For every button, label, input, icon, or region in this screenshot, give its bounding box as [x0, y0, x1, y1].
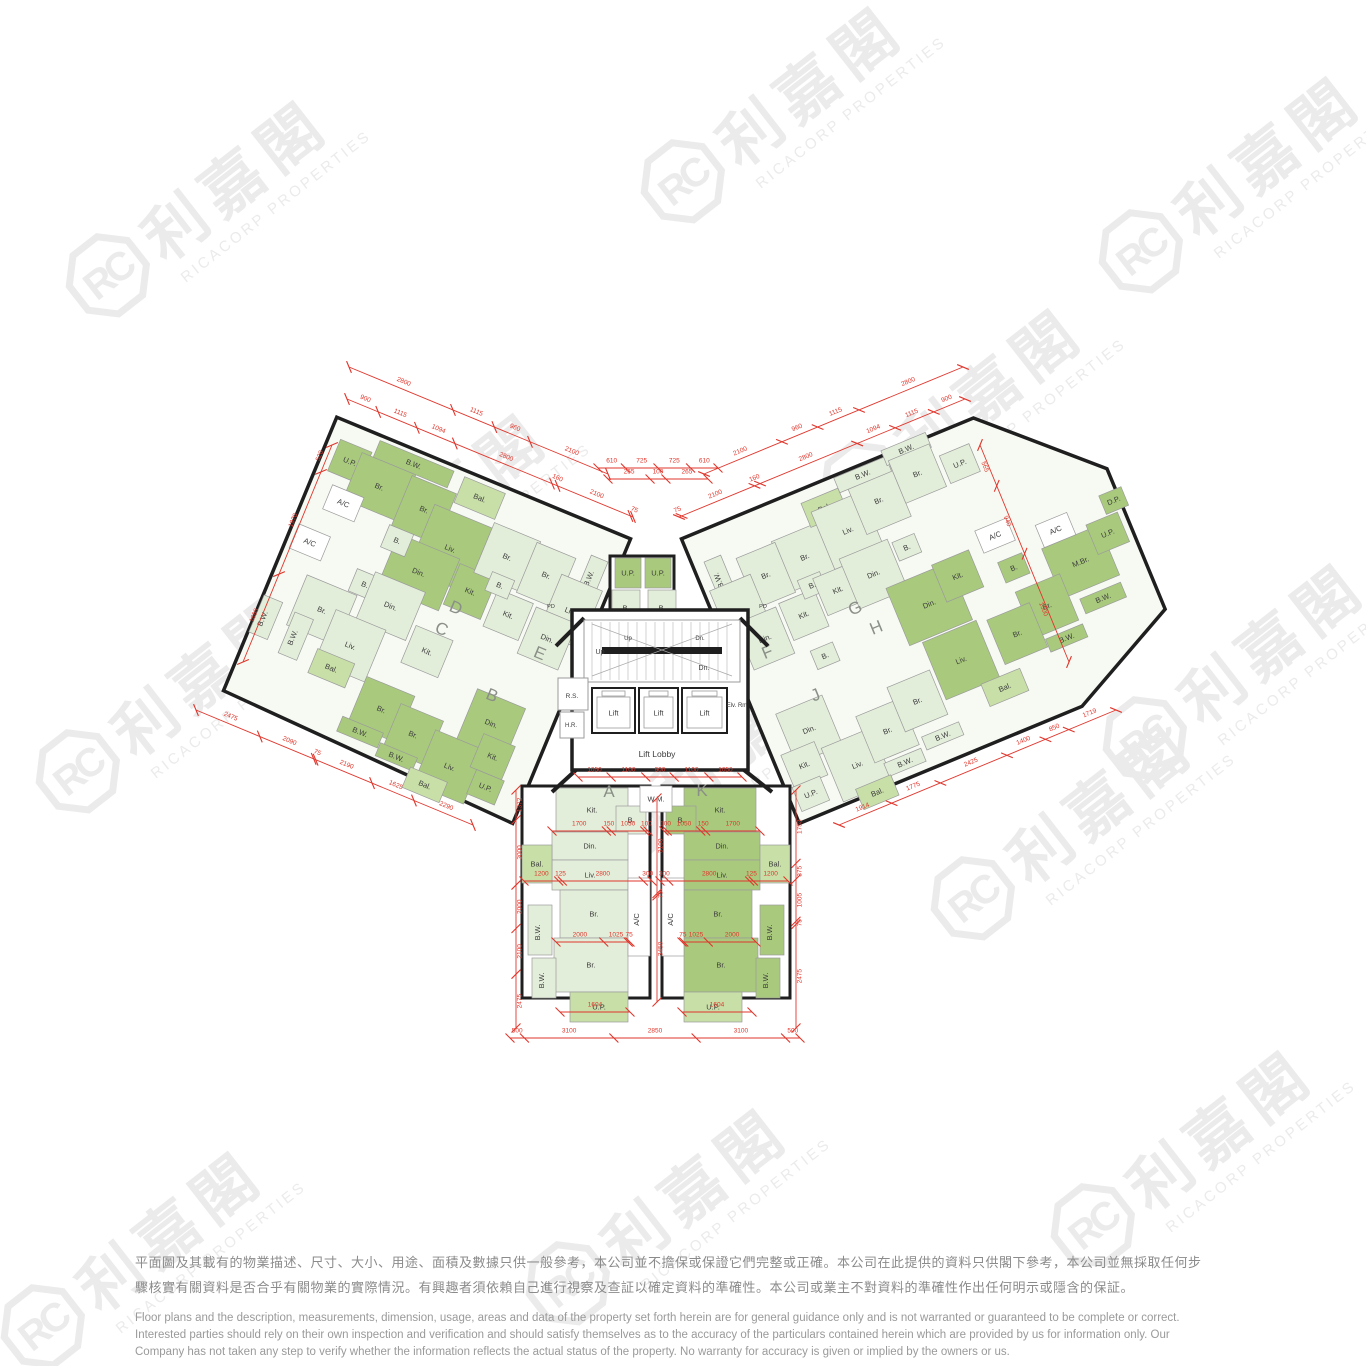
- text-label: 125: [555, 871, 566, 878]
- text-label: 1025: [609, 932, 624, 939]
- text-label: Up: [624, 636, 632, 642]
- text-label: B.W.: [765, 925, 774, 941]
- text-label: 1094: [431, 423, 447, 435]
- text-label: 265: [624, 469, 635, 476]
- text-label: 3000: [517, 845, 524, 860]
- text-label: 75: [658, 891, 665, 899]
- disclaimer-en-line: Company has not taken any step to verify…: [135, 1344, 1240, 1361]
- text-label: Dn.: [695, 636, 705, 642]
- text-label: 1700: [572, 821, 587, 828]
- watermark: RC利嘉閣RICACORP PROPERTIES: [1089, 42, 1366, 320]
- dimension-chain: 17533751005752475: [792, 786, 804, 1033]
- text-label: 75: [673, 505, 683, 514]
- dimension-chain: 265100265: [604, 469, 713, 484]
- text-label: Br.: [586, 961, 595, 970]
- text-label: Kit.: [587, 806, 598, 815]
- text-label: 1094: [865, 423, 881, 435]
- text-label: 900: [359, 394, 372, 405]
- text-label: 2000: [573, 932, 588, 939]
- text-label: B.W.: [537, 973, 546, 989]
- text-label: 300: [642, 871, 653, 878]
- text-label: 3100: [562, 1028, 577, 1035]
- text-label: 1005: [797, 893, 804, 908]
- text-label: 1115: [469, 406, 485, 418]
- text-label: 1604: [588, 1002, 603, 1009]
- text-label: 1115: [393, 408, 409, 420]
- text-label: 1625: [388, 779, 404, 791]
- text-label: 2100: [589, 488, 605, 500]
- text-label: Din.: [715, 842, 728, 851]
- text-label: Kit.: [715, 806, 726, 815]
- text-label: 2800: [396, 376, 412, 388]
- stair-landing: [602, 647, 722, 654]
- text-label: U.P.: [651, 569, 665, 578]
- text-label: PD: [547, 604, 555, 610]
- floor-plan-page: RC利嘉閣RICACORP PROPERTIESRC利嘉閣RICACORP PR…: [0, 0, 1366, 1366]
- text-label: 2475: [797, 969, 804, 984]
- text-label: Liv.: [584, 871, 595, 880]
- text-label: 1719: [1082, 707, 1098, 719]
- text-label: B.W.: [533, 925, 542, 941]
- text-label: 100: [660, 821, 671, 828]
- text-label: 2800: [798, 451, 814, 463]
- left-wing: U.P.B.W.Br.Br.Bal.Liv.Din.Kit.B.A/CA/CB.…: [215, 417, 630, 832]
- text-label: U.P.: [621, 569, 635, 578]
- text-label: 125: [746, 871, 757, 878]
- text-label: 2800: [900, 376, 916, 388]
- disclaimer-zh-line: 平面圖及其載有的物業描述、尺寸、大小、用途、面積及數據只供一般參考，本公司並不擔…: [135, 1250, 1240, 1275]
- disclaimer-block: 平面圖及其載有的物業描述、尺寸、大小、用途、面積及數據只供一般參考，本公司並不擔…: [135, 1250, 1240, 1361]
- text-label: 75: [679, 932, 687, 939]
- text-label: 1050: [677, 821, 692, 828]
- text-label: 2100: [707, 488, 723, 500]
- text-label: 300: [659, 871, 670, 878]
- text-label: 1914: [855, 801, 871, 813]
- text-label: 2100: [732, 445, 748, 457]
- text-label: 1400: [1015, 735, 1031, 747]
- core: LiftLiftLiftLift LobbyR.S.H.R.Elv. RmUpD…: [547, 604, 772, 792]
- text-label: Din.: [583, 842, 596, 851]
- text-label: Lift Lobby: [639, 749, 677, 759]
- text-label: 2425: [963, 756, 979, 768]
- text-label: 100: [653, 469, 664, 476]
- text-label: 150: [698, 821, 709, 828]
- floor-plan-canvas: RC利嘉閣RICACORP PROPERTIESRC利嘉閣RICACORP PR…: [0, 0, 1366, 1366]
- text-label: Up: [596, 649, 605, 656]
- text-label: 725: [669, 458, 680, 465]
- text-label: 2000: [517, 899, 524, 914]
- text-label: 1700: [726, 821, 741, 828]
- disclaimer-en-line: Interested parties should rely on their …: [135, 1327, 1240, 1344]
- watermark: RC利嘉閣RICACORP PROPERTIES: [631, 0, 950, 250]
- text-label: Br.: [713, 910, 722, 919]
- text-label: 1200: [534, 871, 549, 878]
- text-label: Br.: [589, 910, 598, 919]
- text-label: 2800: [596, 871, 611, 878]
- text-label: B.W.: [761, 973, 770, 989]
- text-label: 2090: [281, 735, 297, 747]
- text-label: Dn.: [699, 665, 710, 672]
- text-label: 610: [699, 458, 710, 465]
- text-label: Lift: [608, 709, 619, 718]
- text-label: A/C: [666, 913, 675, 926]
- text-label: 960: [791, 423, 804, 434]
- text-label: Lift: [653, 709, 664, 718]
- text-label: 2290: [438, 800, 454, 812]
- text-label: 2800: [702, 871, 717, 878]
- text-label: 2850: [648, 1028, 663, 1035]
- text-label: 75: [797, 919, 804, 927]
- text-label: 1100: [621, 767, 635, 774]
- text-label: 900: [655, 767, 666, 774]
- watermark: RC利嘉閣RICACORP PROPERTIES: [56, 66, 375, 344]
- text-label: 1050: [718, 767, 733, 774]
- text-label: 1372: [517, 797, 524, 812]
- text-label: 3100: [734, 1028, 749, 1035]
- text-label: Liv.: [716, 871, 727, 880]
- text-label: 2100: [517, 944, 524, 959]
- text-label: 3450: [658, 941, 665, 956]
- text-label: H.R.: [565, 723, 577, 729]
- text-label: 725: [636, 458, 647, 465]
- text-label: K: [696, 781, 708, 800]
- text-label: 2000: [725, 932, 740, 939]
- text-label: 150: [603, 821, 614, 828]
- text-label: Bal.: [769, 860, 782, 869]
- dimension-chain: 500310028503100500: [506, 1028, 805, 1043]
- text-label: 100: [641, 821, 652, 828]
- text-label: 850: [1048, 723, 1061, 734]
- text-label: 1100: [685, 767, 699, 774]
- text-label: 1050: [587, 767, 602, 774]
- text-label: Lift: [699, 709, 710, 718]
- text-label: Br.: [716, 961, 725, 970]
- text-label: 160: [748, 473, 761, 484]
- text-label: 265: [682, 469, 693, 476]
- text-label: R.S.: [566, 693, 579, 700]
- text-label: Elv. Rm: [727, 703, 748, 709]
- text-label: 1753: [797, 819, 804, 834]
- text-label: 1025: [689, 932, 704, 939]
- text-label: Bal.: [531, 860, 544, 869]
- disclaimer-zh-line: 驟核實有關資料是否合乎有關物業的實際情況。有興趣者須依賴自己進行視察及查証以確定…: [135, 1275, 1240, 1300]
- text-label: 1775: [905, 780, 921, 792]
- text-label: 2190: [339, 759, 355, 771]
- text-label: 2475: [517, 993, 524, 1008]
- text-label: A/C: [632, 913, 641, 926]
- text-label: 1604: [710, 1002, 725, 1009]
- text-label: 1050: [621, 821, 636, 828]
- disclaimer-en-line: Floor plans and the description, measure…: [135, 1310, 1240, 1327]
- text-label: A: [603, 782, 615, 801]
- text-label: 1200: [763, 871, 778, 878]
- text-label: PD: [759, 604, 767, 610]
- text-label: 75: [625, 932, 633, 939]
- text-label: 610: [606, 458, 617, 465]
- text-label: 1115: [828, 406, 844, 418]
- text-label: 3100: [658, 838, 665, 853]
- text-label: 375: [797, 865, 804, 876]
